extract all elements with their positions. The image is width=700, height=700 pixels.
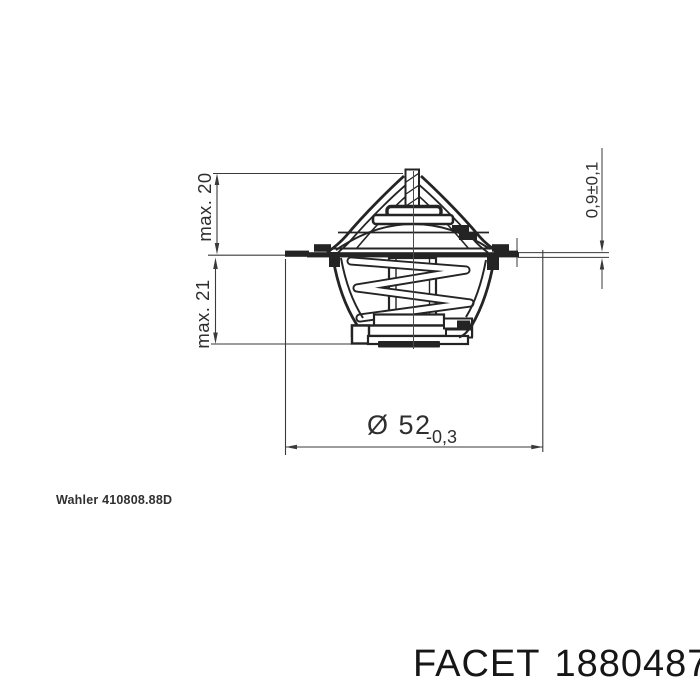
bracket-step-1	[452, 225, 469, 232]
arrow-left-icon	[286, 445, 298, 450]
manufacturer-reference-label: Wahler 410808.88D	[56, 493, 172, 507]
arrow-down-icon	[600, 241, 604, 253]
technical-drawing: max. 20 max. 21 Ø 52 -0,3 0,9±0,1	[0, 0, 700, 700]
arrow-up-icon	[213, 258, 218, 270]
piston-pin	[406, 170, 420, 208]
part-number-label: 1880487	[554, 643, 700, 686]
arrow-up-icon	[215, 174, 220, 186]
spring-seat	[374, 315, 444, 326]
brand-label: FACET	[413, 643, 540, 686]
dome-base-tab-right	[492, 244, 509, 252]
cage-hook-right	[487, 257, 499, 270]
arrow-up-icon	[600, 258, 604, 270]
cage-hook-left	[329, 252, 340, 267]
bracket-step-2	[459, 233, 477, 240]
arrow-right-icon	[531, 445, 543, 450]
dim-label-max21: max. 21	[192, 279, 213, 348]
dim-label-flange-thickness: 0,9±0,1	[583, 162, 602, 219]
dim-label-diameter-tolerance: -0,3	[426, 427, 457, 447]
bottom-right-bracket-dark	[457, 321, 470, 328]
flange-lip-left	[285, 251, 309, 257]
arrow-down-icon	[215, 243, 220, 255]
valve-dark-bar	[378, 341, 440, 348]
dim-label-max20: max. 20	[194, 172, 215, 241]
thermostat-technical-drawing-page: max. 20 max. 21 Ø 52 -0,3 0,9±0,1 Wahler…	[0, 0, 700, 700]
bottom-left-step	[352, 326, 369, 344]
dim-label-diameter: Ø 52	[367, 410, 432, 440]
brand-part-number-line: FACET1880487	[413, 643, 700, 686]
dome-base-tab-left	[314, 244, 331, 252]
cage-wall-left-outer	[333, 258, 357, 325]
arrow-down-icon	[213, 333, 218, 345]
brand-gap	[540, 643, 554, 686]
